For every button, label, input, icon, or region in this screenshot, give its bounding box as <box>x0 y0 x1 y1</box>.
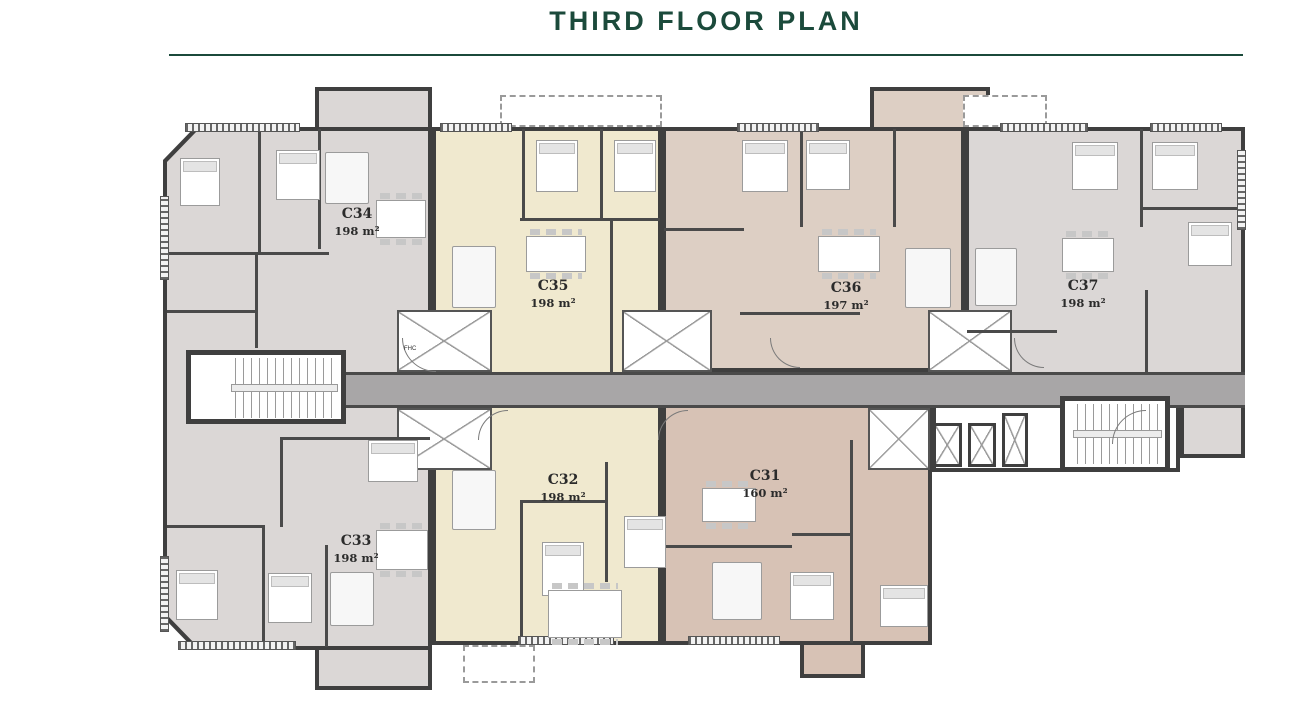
window-strip <box>737 123 819 132</box>
elevator <box>968 423 996 467</box>
balcony-bottom-left <box>315 646 432 690</box>
sofa <box>330 572 374 626</box>
bed <box>268 573 312 623</box>
wall <box>255 252 258 348</box>
unit-area: 197 m² <box>823 298 868 312</box>
elevator <box>1002 413 1028 467</box>
staircase-left <box>186 350 346 424</box>
bed <box>180 158 220 206</box>
unit-label-c31: C31 160 m² <box>742 468 787 500</box>
unit-label-c35: C35 198 m² <box>530 278 575 310</box>
wall <box>605 462 608 582</box>
wall <box>800 129 803 227</box>
unit-area: 198 m² <box>1060 296 1105 310</box>
unit-id: C36 <box>823 280 868 298</box>
wall <box>1140 129 1143 227</box>
floor-plan: FHC C34 198 m² C35 198 m² C36 197 m² C37… <box>0 0 1312 717</box>
sofa <box>905 248 951 308</box>
bed <box>536 140 578 192</box>
shaft <box>622 310 712 372</box>
wall <box>167 310 257 313</box>
wall <box>850 440 853 643</box>
sofa <box>712 562 762 620</box>
bed <box>790 572 834 620</box>
wall <box>520 500 523 643</box>
unit-id: C34 <box>334 206 379 224</box>
stair-landing <box>231 384 338 392</box>
dining-table <box>376 200 426 238</box>
unit-label-c37: C37 198 m² <box>1060 278 1105 310</box>
dining-table <box>376 530 428 570</box>
window-strip <box>440 123 512 132</box>
bed <box>880 585 928 627</box>
wall <box>1145 290 1148 375</box>
unit-area: 198 m² <box>333 551 378 565</box>
service-room-right <box>1180 400 1245 458</box>
bed <box>742 140 788 192</box>
shaft <box>928 310 1012 372</box>
wall <box>664 545 792 548</box>
void-dashed-top-left <box>500 95 662 127</box>
balcony-top-left <box>315 87 432 131</box>
bed <box>1152 142 1198 190</box>
unit-id: C31 <box>742 468 787 486</box>
page: THIRD FLOOR PLAN <box>0 0 1312 717</box>
window-strip <box>185 123 300 132</box>
wall <box>893 129 896 227</box>
unit-area: 198 m² <box>334 224 379 238</box>
dining-table <box>1062 238 1114 272</box>
window-strip <box>160 196 169 280</box>
bed <box>176 570 218 620</box>
bed <box>1072 142 1118 190</box>
unit-label-c34: C34 198 m² <box>334 206 379 238</box>
sofa <box>452 470 496 530</box>
dining-table <box>526 236 586 272</box>
elevator <box>933 423 962 467</box>
unit-id: C37 <box>1060 278 1105 296</box>
dining-table <box>548 590 622 638</box>
wall <box>740 312 860 315</box>
shaft <box>868 408 930 470</box>
wall <box>522 129 525 221</box>
wall <box>280 437 283 527</box>
stair-treads <box>235 392 338 418</box>
bed <box>806 140 850 190</box>
sofa <box>325 152 369 204</box>
wall <box>262 525 265 647</box>
bed <box>276 150 320 200</box>
wall <box>967 330 1057 333</box>
window-strip <box>1237 150 1246 230</box>
wall <box>1143 207 1243 210</box>
wall <box>664 228 744 231</box>
window-strip <box>178 641 296 650</box>
wall <box>600 129 603 221</box>
unit-area: 160 m² <box>742 486 787 500</box>
balcony-bottom-c31 <box>800 641 865 678</box>
bed <box>614 140 656 192</box>
wall <box>520 218 660 221</box>
wall <box>325 545 328 647</box>
window-strip <box>1000 123 1088 132</box>
unit-label-c33: C33 198 m² <box>333 533 378 565</box>
fhc-label: FHC <box>404 346 416 352</box>
unit-area: 198 m² <box>530 296 575 310</box>
wall <box>258 130 261 254</box>
window-strip <box>160 556 169 632</box>
unit-label-c36: C36 197 m² <box>823 280 868 312</box>
sofa <box>452 246 496 308</box>
wall <box>167 525 265 528</box>
unit-id: C35 <box>530 278 575 296</box>
dining-table <box>818 236 880 272</box>
window-strip <box>688 636 780 645</box>
bed <box>1188 222 1232 266</box>
unit-label-c32: C32 198 m² <box>540 472 585 504</box>
unit-area: 198 m² <box>540 490 585 504</box>
unit-id: C32 <box>540 472 585 490</box>
sofa <box>975 248 1017 306</box>
bed <box>624 516 666 568</box>
wall <box>167 252 329 255</box>
unit-id: C33 <box>333 533 378 551</box>
stair-treads <box>235 358 338 384</box>
wall <box>610 218 613 372</box>
window-strip <box>1150 123 1222 132</box>
void-dashed-bottom <box>463 645 535 683</box>
bed <box>368 440 418 482</box>
wall <box>792 533 852 536</box>
